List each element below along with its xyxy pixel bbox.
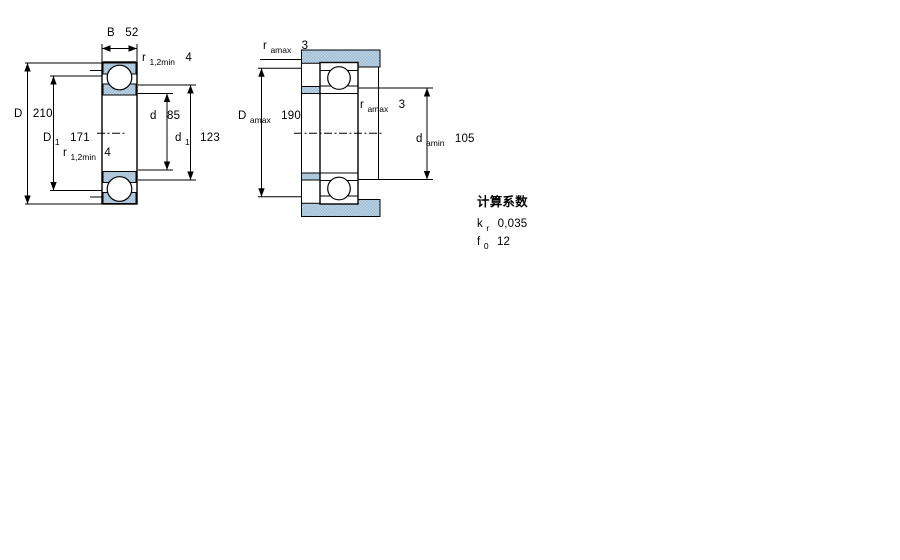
factor-f0: f 0 12: [477, 236, 510, 249]
shaft-shoulder-bottom: [302, 173, 321, 180]
dim-label-width-B: B 52: [107, 27, 138, 40]
dim-subscript: 1,2min: [70, 152, 96, 162]
right-mounting-cross-section: [294, 50, 384, 217]
dim-symbol: B: [107, 27, 115, 39]
dim-value: 171: [70, 132, 90, 144]
dim-label-D1: D 1 171: [43, 132, 90, 145]
dim-subscript: amin: [426, 138, 444, 148]
dim-value: 210: [33, 108, 53, 120]
dim-symbol: D: [14, 108, 23, 120]
factor-value: 12: [497, 236, 510, 248]
dim-label-outer-diameter-D: D 210: [14, 108, 53, 121]
dim-value: 105: [455, 133, 475, 145]
dim-subscript: 1: [55, 137, 60, 147]
left-bearing-cross-section: [97, 62, 137, 204]
dim-value: 190: [281, 110, 301, 122]
dim-label-r-amax-mid: r amax 3: [360, 99, 405, 112]
dim-label-da-min: d amin 105: [416, 133, 475, 146]
dim-value: 85: [167, 110, 180, 122]
dim-symbol: D: [238, 110, 247, 122]
diagram-canvas: [0, 0, 900, 560]
heading-text: 计算系数: [477, 195, 528, 209]
dim-symbol: r: [263, 40, 267, 52]
dim-symbol: d: [150, 110, 157, 122]
dim-symbol: r: [142, 52, 146, 64]
dim-value: 3: [302, 40, 309, 52]
dim-label-r-top: r 1,2min 4: [142, 52, 192, 65]
factor-kr: k r 0,035: [477, 218, 527, 231]
ball-top: [328, 67, 351, 90]
factor-subscript: r: [486, 223, 489, 233]
dim-label-r-amax-top: r amax 3: [263, 40, 308, 53]
dim-value: 4: [104, 147, 111, 159]
dim-symbol: r: [63, 147, 67, 159]
factor-subscript: 0: [484, 241, 489, 251]
dim-symbol: r: [360, 99, 364, 111]
dim-subscript: 1,2min: [149, 57, 175, 67]
dim-symbol: d: [416, 133, 423, 145]
ball-bottom: [107, 177, 132, 202]
dim-value: 3: [399, 99, 406, 111]
ball-top: [107, 65, 132, 90]
dim-subscript: amax: [270, 45, 291, 55]
dim-value: 123: [200, 132, 220, 144]
factor-value: 0,035: [498, 218, 528, 230]
dim-value: 4: [185, 52, 192, 64]
dim-value: 52: [125, 27, 138, 39]
dim-label-r-bottom: r 1,2min 4: [63, 147, 111, 160]
dim-subscript: 1: [185, 137, 190, 147]
ball-bottom: [328, 177, 351, 200]
dim-label-Da-max: D amax 190: [238, 110, 301, 123]
dim-subscript: amax: [367, 104, 388, 114]
factor-symbol: f: [477, 236, 480, 248]
dim-symbol: D: [43, 132, 52, 144]
bearing-dimension-drawing: B 52 r 1,2min 4 D 210 D 1 171 r 1,2min 4…: [0, 0, 900, 560]
calculation-factors-heading: 计算系数: [477, 196, 528, 209]
dim-subscript: amax: [250, 115, 271, 125]
dim-label-bore-d: d 85: [150, 110, 180, 123]
shaft-shoulder-top: [302, 87, 321, 94]
dim-symbol: d: [175, 132, 182, 144]
dim-label-d1: d 1 123: [175, 132, 220, 145]
factor-symbol: k: [477, 218, 483, 230]
